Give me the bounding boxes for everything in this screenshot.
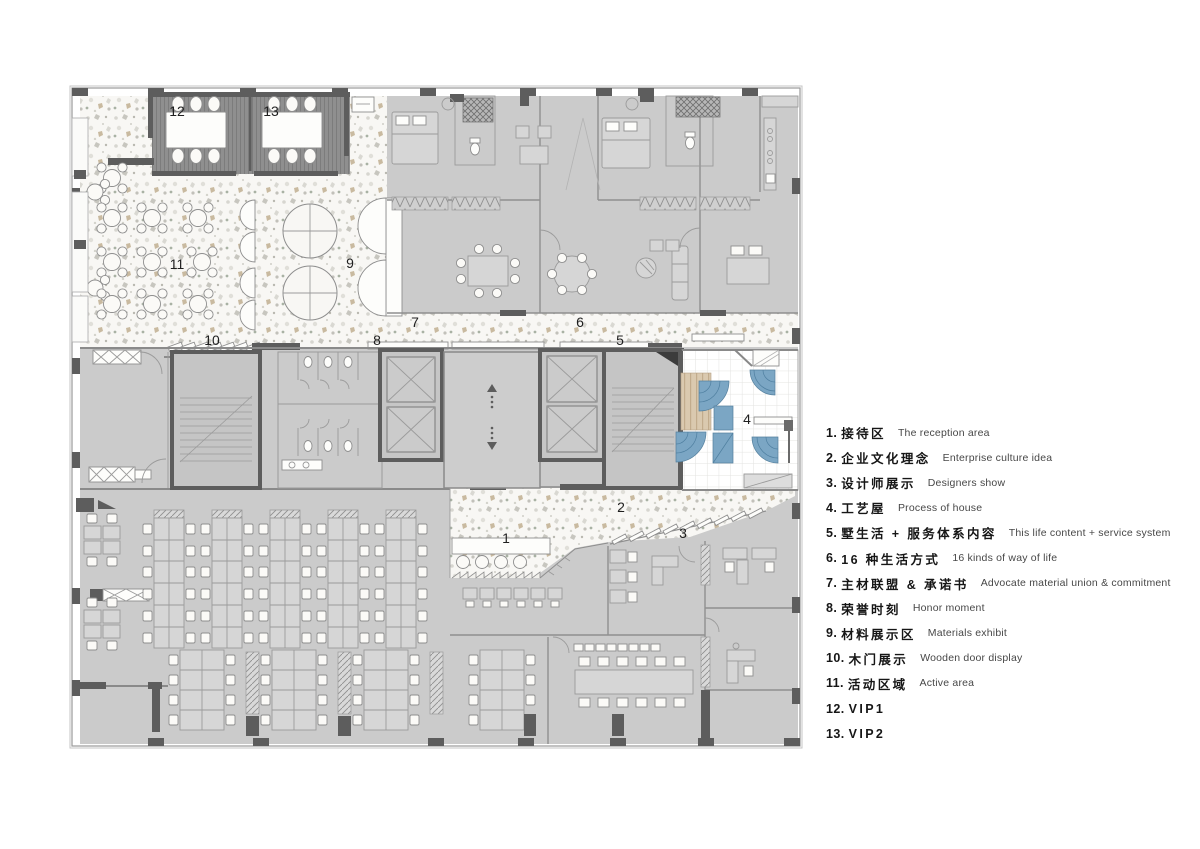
legend-item: 7. 主材联盟 & 承诺书 Advocate material union & … — [826, 571, 1171, 596]
legend-label-zh: 墅生活 + 服务体系内容 — [841, 523, 997, 542]
stair-right — [604, 350, 682, 488]
legend-label-en: Wooden door display — [920, 652, 1022, 664]
legend-label-en: Process of house — [898, 502, 982, 514]
legend-number: 8. — [826, 601, 837, 615]
legend-item: 5. 墅生活 + 服务体系内容 This life content + serv… — [826, 520, 1171, 545]
legend-label-zh: VIP2 — [849, 727, 886, 741]
legend-number: 3. — [826, 476, 837, 490]
legend-item: 12. VIP1 — [826, 696, 1171, 721]
legend-label-en: This life content + service system — [1009, 527, 1171, 539]
plan-label-9: 9 — [346, 255, 354, 271]
elevator-bank-left — [380, 350, 442, 460]
legend: 1. 接待区 The reception area 2. 企业文化理念 Ente… — [826, 420, 1171, 746]
legend-label-zh: 材料展示区 — [841, 624, 916, 643]
plan-label-8: 8 — [373, 332, 381, 348]
legend-label-zh: 接待区 — [841, 423, 886, 442]
legend-item: 1. 接待区 The reception area — [826, 420, 1171, 445]
plan-label-4: 4 — [743, 411, 751, 427]
stair-left — [172, 352, 260, 488]
elevator-lobby — [444, 352, 540, 488]
legend-item: 11. 活动区域 Active area — [826, 671, 1171, 696]
legend-label-zh: 主材联盟 & 承诺书 — [841, 574, 968, 593]
process-house-area — [676, 350, 798, 490]
elevator-bank-right — [540, 350, 604, 460]
plan-label-12: 12 — [169, 103, 185, 119]
legend-label-en: Enterprise culture idea — [943, 452, 1053, 464]
legend-label-zh: 工艺屋 — [841, 498, 886, 517]
legend-label-zh: VIP1 — [849, 702, 886, 716]
legend-number: 13. — [826, 727, 845, 741]
legend-item: 13. VIP2 — [826, 721, 1171, 746]
legend-label-en: Designers show — [928, 477, 1006, 489]
reception-counter — [452, 538, 550, 554]
legend-label-en: The reception area — [898, 427, 990, 439]
legend-number: 5. — [826, 526, 837, 540]
legend-number: 9. — [826, 626, 837, 640]
legend-item: 10. 木门展示 Wooden door display — [826, 646, 1171, 671]
legend-label-en: 16 kinds of way of life — [952, 552, 1057, 564]
plan-label-11: 11 — [170, 256, 185, 272]
legend-number: 11. — [826, 676, 844, 690]
legend-label-zh: 荣誉时刻 — [841, 599, 901, 618]
plan-label-13: 13 — [263, 103, 279, 119]
legend-item: 6. 16 种生活方式 16 kinds of way of life — [826, 545, 1171, 570]
plan-label-5: 5 — [616, 332, 624, 348]
legend-number: 10. — [826, 651, 845, 665]
legend-item: 3. 设计师展示 Designers show — [826, 470, 1171, 495]
legend-number: 4. — [826, 501, 837, 515]
legend-label-zh: 活动区域 — [848, 674, 908, 693]
dining-table — [468, 256, 508, 286]
legend-item: 9. 材料展示区 Materials exhibit — [826, 621, 1171, 646]
legend-label-en: Materials exhibit — [928, 627, 1007, 639]
legend-item: 4. 工艺屋 Process of house — [826, 495, 1171, 520]
plan-label-7: 7 — [411, 314, 419, 330]
floorplan-page: 1 2 3 4 5 6 7 8 9 10 11 12 13 1. 接待区 The… — [0, 0, 1200, 849]
legend-label-zh: 企业文化理念 — [841, 448, 930, 467]
legend-label-en: Active area — [920, 677, 975, 689]
plan-label-10: 10 — [204, 332, 220, 348]
legend-number: 6. — [826, 551, 837, 565]
legend-number: 1. — [826, 426, 837, 440]
legend-label-zh: 16 种生活方式 — [841, 549, 940, 568]
legend-number: 12. — [826, 702, 845, 716]
legend-item: 8. 荣誉时刻 Honor moment — [826, 596, 1171, 621]
plan-label-1: 1 — [502, 530, 510, 546]
legend-item: 2. 企业文化理念 Enterprise culture idea — [826, 445, 1171, 470]
plan-label-2: 2 — [617, 499, 625, 515]
plan-label-6: 6 — [576, 314, 584, 330]
plan-label-3: 3 — [679, 525, 687, 541]
ac-unit — [352, 97, 374, 112]
legend-label-zh: 木门展示 — [849, 649, 909, 668]
legend-number: 7. — [826, 576, 837, 590]
legend-label-zh: 设计师展示 — [841, 473, 916, 492]
legend-number: 2. — [826, 451, 837, 465]
legend-label-en: Honor moment — [913, 602, 985, 614]
display-wall — [386, 198, 402, 316]
legend-label-en: Advocate material union & commitment — [981, 577, 1171, 589]
